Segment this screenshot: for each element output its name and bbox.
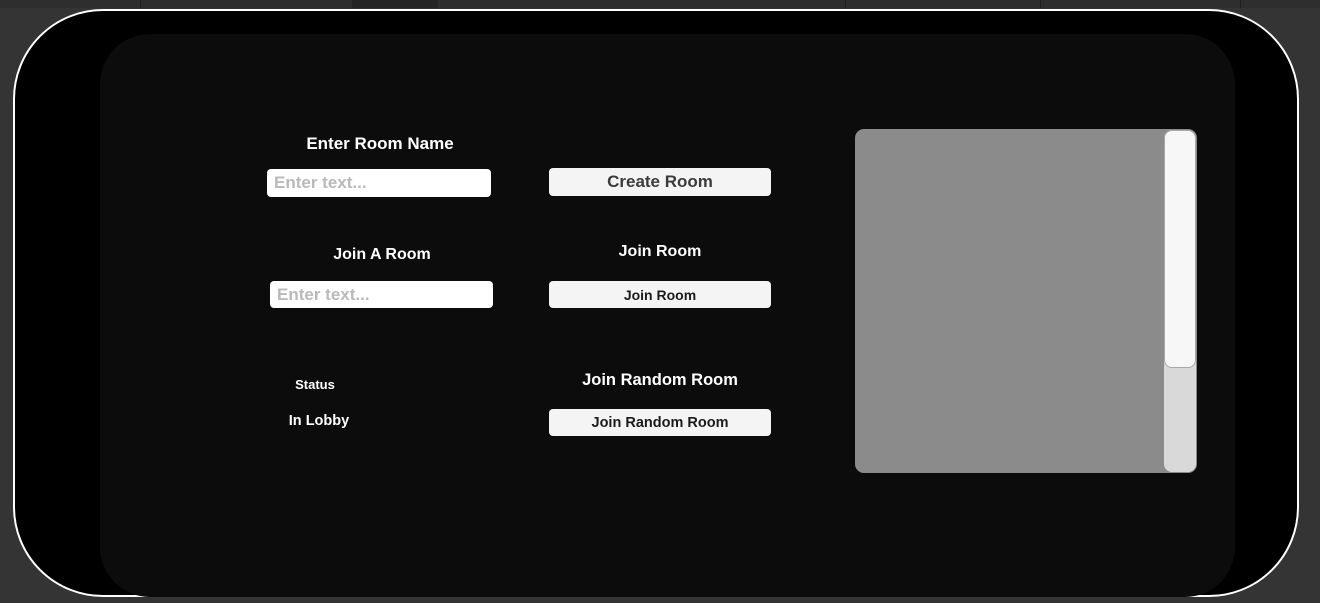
join-random-room-button[interactable]: Join Random Room	[549, 409, 771, 436]
tab-separator	[845, 0, 846, 8]
room-name-input[interactable]	[267, 169, 491, 197]
join-room-header: Join Room	[549, 243, 771, 261]
tab-separator	[1040, 0, 1041, 8]
room-list-scrollbar-thumb[interactable]	[1164, 130, 1196, 368]
status-label: Status	[265, 377, 365, 392]
join-room-name-input[interactable]	[270, 281, 493, 308]
room-list-scrollbar-track[interactable]	[1164, 130, 1196, 472]
join-room-button[interactable]: Join Room	[549, 281, 771, 308]
editor-active-tab	[352, 0, 438, 8]
enter-room-name-label: Enter Room Name	[268, 134, 492, 154]
room-list-panel	[855, 129, 1197, 473]
editor-tab-strip	[0, 0, 1320, 8]
screen: Enter Room Name Create Room Join A Room …	[0, 0, 1320, 603]
join-a-room-label: Join A Room	[270, 246, 494, 264]
tab-separator	[1240, 0, 1241, 8]
status-value: In Lobby	[259, 413, 379, 429]
tab-separator	[140, 0, 141, 8]
create-room-button[interactable]: Create Room	[549, 168, 771, 196]
join-random-room-header: Join Random Room	[549, 371, 771, 390]
